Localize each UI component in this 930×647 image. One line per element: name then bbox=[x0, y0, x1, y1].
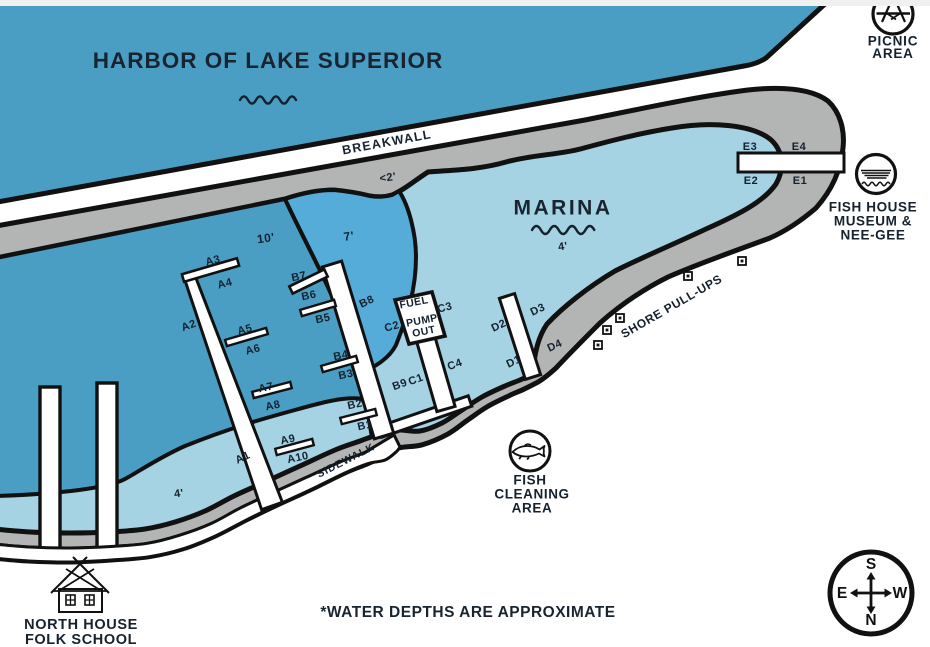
svg-text:FISH HOUSE: FISH HOUSE bbox=[829, 200, 918, 215]
svg-text:E4: E4 bbox=[792, 141, 807, 153]
svg-text:<2': <2' bbox=[379, 171, 397, 185]
svg-text:AREA: AREA bbox=[512, 501, 553, 516]
svg-text:4': 4' bbox=[173, 487, 184, 500]
svg-text:7': 7' bbox=[343, 229, 355, 244]
svg-text:MUSEUM &: MUSEUM & bbox=[834, 214, 912, 229]
svg-text:NORTH HOUSE: NORTH HOUSE bbox=[24, 617, 138, 633]
svg-text:E3: E3 bbox=[743, 141, 757, 153]
svg-text:NEE-GEE: NEE-GEE bbox=[841, 228, 906, 243]
svg-text:10': 10' bbox=[256, 230, 275, 246]
svg-text:FOLK SCHOOL: FOLK SCHOOL bbox=[25, 632, 137, 647]
svg-text:E: E bbox=[837, 585, 847, 602]
svg-text:N: N bbox=[865, 612, 876, 629]
svg-text:FISH: FISH bbox=[513, 473, 546, 488]
svg-text:E2: E2 bbox=[744, 175, 758, 187]
svg-text:E1: E1 bbox=[793, 175, 807, 187]
svg-text:W: W bbox=[893, 585, 908, 602]
svg-text:CLEANING: CLEANING bbox=[494, 487, 569, 502]
svg-text:4': 4' bbox=[557, 240, 568, 253]
svg-text:MARINA: MARINA bbox=[514, 197, 613, 220]
svg-text:AREA: AREA bbox=[872, 46, 913, 61]
svg-text:S: S bbox=[866, 556, 876, 573]
svg-text:*WATER DEPTHS ARE APPROXIMATE: *WATER DEPTHS ARE APPROXIMATE bbox=[320, 604, 615, 621]
svg-text:HARBOR OF LAKE SUPERIOR: HARBOR OF LAKE SUPERIOR bbox=[93, 48, 444, 73]
